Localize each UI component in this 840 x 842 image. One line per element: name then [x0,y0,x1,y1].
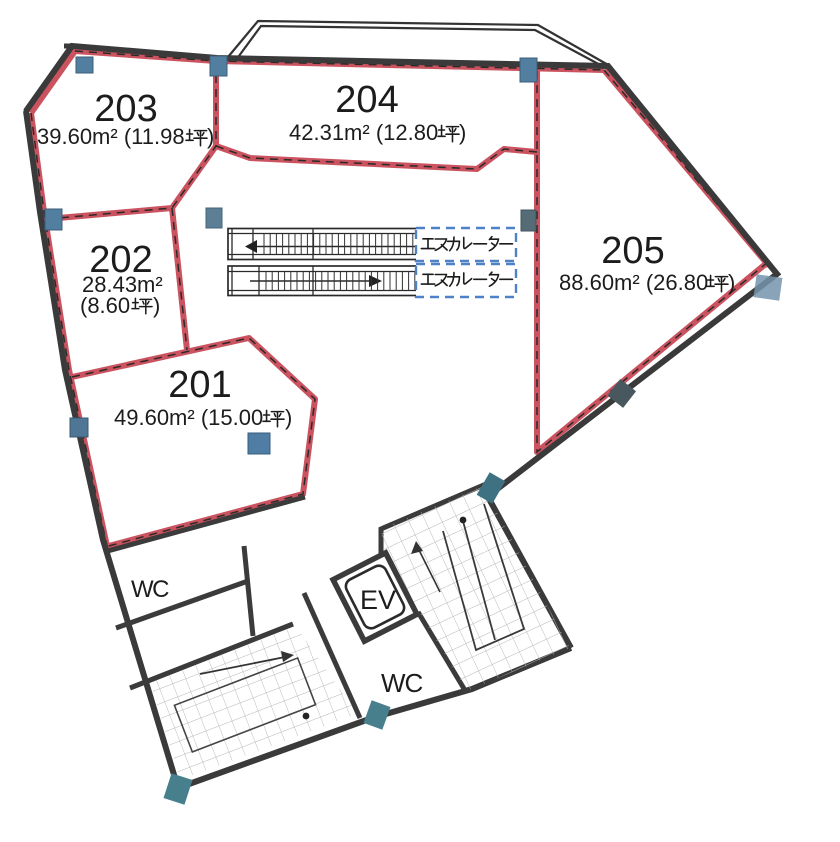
svg-text:42.31m² (12.80: 42.31m² (12.80 [289,120,438,145]
svg-text:): ) [153,293,160,318]
svg-text:): ) [207,124,214,149]
svg-text:201: 201 [168,364,231,406]
svg-text:WC: WC [131,576,169,603]
svg-text:204: 204 [335,79,398,121]
svg-text:(8.60: (8.60 [80,293,130,318]
svg-text:): ) [459,120,466,145]
svg-text:88.60m² (26.80: 88.60m² (26.80 [559,270,708,295]
svg-text:49.60m² (15.00: 49.60m² (15.00 [114,405,263,430]
svg-text:39.60m² (11.98: 39.60m² (11.98 [37,124,185,149]
svg-text:EV: EV [360,585,396,615]
svg-text:): ) [285,405,292,430]
svg-text:WC: WC [381,668,423,698]
svg-text:205: 205 [601,230,664,272]
svg-text:): ) [728,270,735,295]
